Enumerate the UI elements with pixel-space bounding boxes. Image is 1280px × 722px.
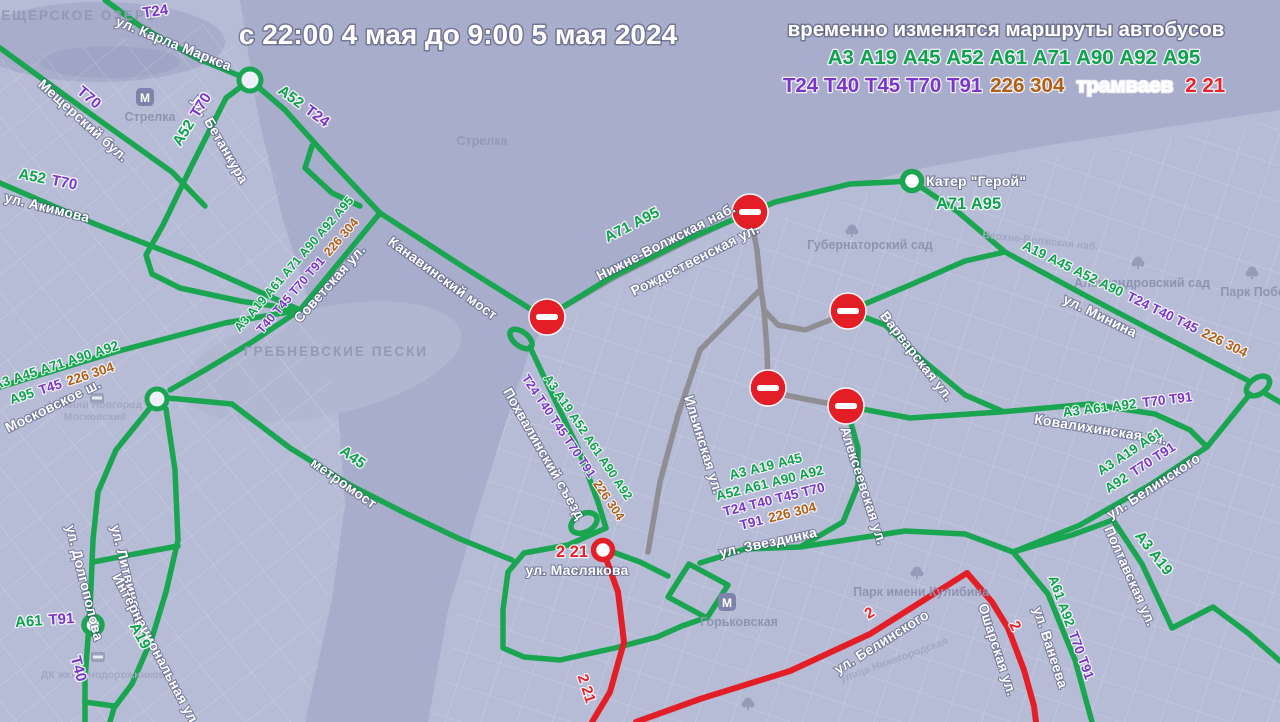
- area-label-strelka: Стрелка: [457, 134, 509, 148]
- area-label-grebnevskie-peski: ГРЕБНЕВСКИЕ ПЕСКИ: [244, 344, 428, 359]
- area-label-park-kulibina: Парк имени Кулибина: [853, 585, 990, 599]
- area-label-dk-zheleznodorozhnikov: ДК железнодорожников: [41, 669, 166, 681]
- legend-buses-green: А3 А19 А45 А52 А61 А71 А90 А92 А95: [828, 46, 1201, 69]
- page-title: с 22:00 4 мая до 9:00 5 мая 2024: [239, 19, 678, 50]
- route-label-kater-routes: А71 А95: [936, 195, 1001, 213]
- railway-station-icon: [91, 652, 105, 662]
- area-label-gubernatorsky-sad: Губернаторский сад: [807, 238, 933, 252]
- street-label-maslyakova: ул. Маслякова: [526, 562, 629, 578]
- metro-icon-gorkovskaya: М: [718, 593, 736, 611]
- area-label-park-pobedy: Парк Победы: [1220, 285, 1280, 299]
- no-entry-icon: [529, 299, 565, 335]
- legend-line3: Т24 Т40 Т45 Т70 Т91226 304трамваев2 21: [783, 74, 1225, 97]
- route-label-tram-maslyakova: 2 21: [556, 543, 588, 561]
- svg-text:М: М: [140, 91, 150, 105]
- roundabout-kanavino: [147, 389, 167, 409]
- stop-label-kater-geroy: Катер "Герой": [926, 173, 1026, 189]
- roundabout-strelka: [239, 69, 261, 91]
- map-canvas: М М МЕЩЕРСКОЕ ОЗЕРО ГРЕБНЕВСКИЕ ПЕСКИ Ст…: [0, 0, 1280, 722]
- stop-tram-maslyakova: [594, 541, 613, 560]
- area-label-strelka-metro: Стрелка: [125, 110, 177, 124]
- area-label-nn-moskovsky-2: Московский: [64, 411, 127, 423]
- area-label-gorkovskaya: Горьковская: [700, 615, 778, 629]
- legend-notice: временно изменятся маршруты автобусов: [788, 18, 1225, 41]
- svg-text:М: М: [722, 596, 732, 610]
- stop-kater-geroy: [903, 172, 922, 191]
- no-entry-icon: [828, 388, 864, 424]
- route-change-map: М М МЕЩЕРСКОЕ ОЗЕРО ГРЕБНЕВСКИЕ ПЕСКИ Ст…: [0, 0, 1280, 722]
- no-entry-icon: [830, 293, 866, 329]
- metro-icon-strelka: М: [136, 88, 154, 106]
- no-entry-icon: [750, 370, 786, 406]
